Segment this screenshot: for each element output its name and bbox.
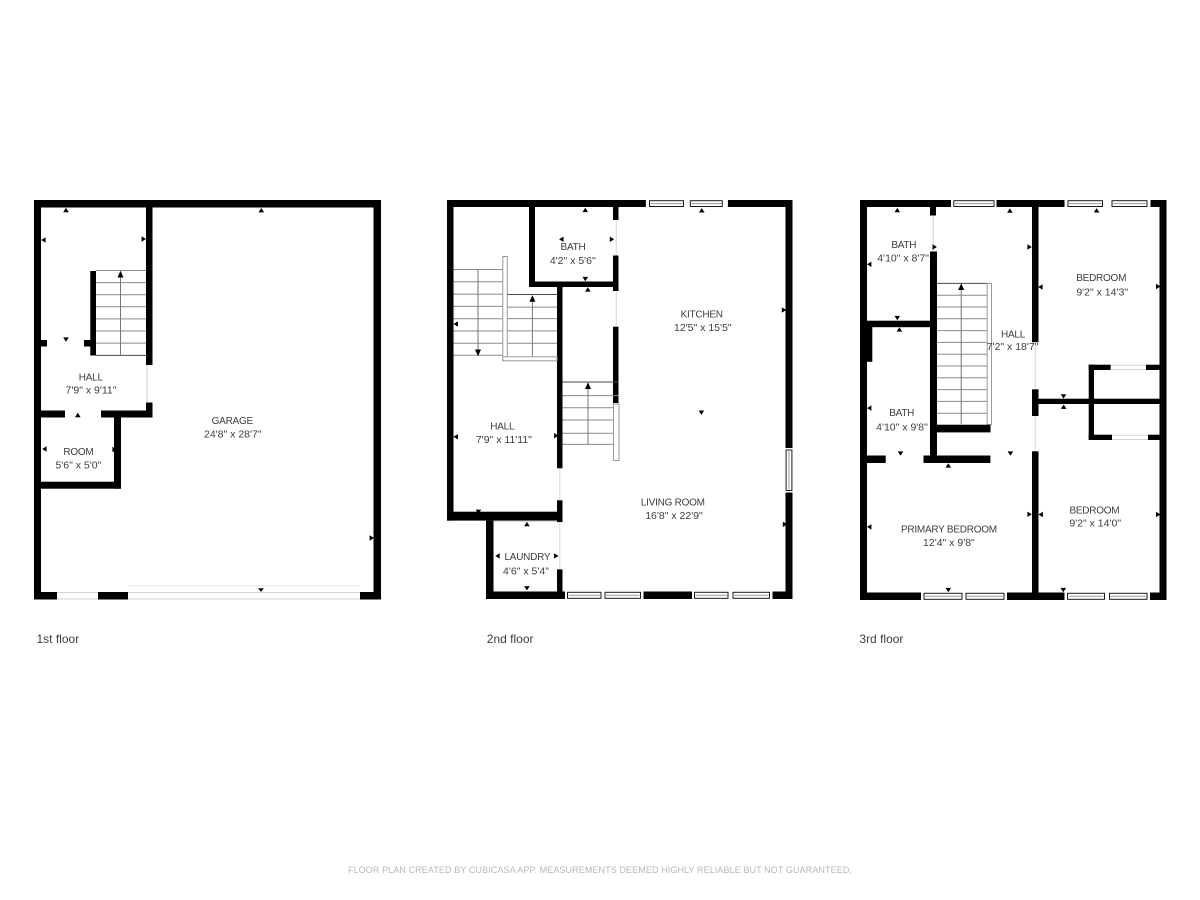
- svg-text:16'8" x 22'9": 16'8" x 22'9": [645, 510, 703, 522]
- svg-text:BEDROOM: BEDROOM: [1069, 506, 1119, 517]
- svg-text:KITCHEN: KITCHEN: [681, 309, 723, 320]
- svg-text:BATH: BATH: [561, 242, 586, 253]
- svg-text:4'2" x 5'6": 4'2" x 5'6": [550, 255, 596, 267]
- svg-text:7'9" x 11'11": 7'9" x 11'11": [476, 434, 532, 446]
- svg-text:7'9" x 9'11": 7'9" x 9'11": [66, 384, 117, 396]
- svg-text:LAUNDRY: LAUNDRY: [504, 552, 550, 563]
- svg-text:BATH: BATH: [889, 408, 914, 419]
- svg-text:ROOM: ROOM: [63, 447, 93, 458]
- svg-text:4'6" x 5'4": 4'6" x 5'4": [503, 566, 549, 578]
- svg-text:4'10" x 9'8": 4'10" x 9'8": [876, 421, 928, 433]
- svg-text:HALL: HALL: [490, 422, 515, 433]
- svg-text:3rd floor: 3rd floor: [859, 632, 903, 646]
- svg-text:BEDROOM: BEDROOM: [1076, 273, 1126, 284]
- svg-text:BATH: BATH: [891, 240, 916, 251]
- svg-text:4'10" x 8'7": 4'10" x 8'7": [877, 253, 929, 265]
- svg-text:9'2" x 14'3": 9'2" x 14'3": [1076, 286, 1128, 298]
- svg-text:PRIMARY BEDROOM: PRIMARY BEDROOM: [901, 525, 997, 536]
- svg-text:12'5" x 15'5": 12'5" x 15'5": [674, 322, 732, 334]
- svg-text:FLOOR PLAN CREATED BY CUBICASA: FLOOR PLAN CREATED BY CUBICASA APP. MEAS…: [348, 865, 852, 875]
- svg-text:2nd floor: 2nd floor: [487, 632, 534, 646]
- svg-text:LIVING ROOM: LIVING ROOM: [641, 498, 705, 509]
- svg-text:1st floor: 1st floor: [37, 632, 80, 646]
- svg-text:HALL: HALL: [79, 373, 104, 384]
- svg-text:5'6" x 5'0": 5'6" x 5'0": [55, 459, 101, 471]
- svg-text:HALL: HALL: [1001, 330, 1026, 341]
- svg-text:24'8" x 28'7": 24'8" x 28'7": [204, 428, 262, 440]
- svg-text:7'2" x 18'7": 7'2" x 18'7": [987, 341, 1039, 353]
- svg-text:12'4" x 9'8": 12'4" x 9'8": [923, 537, 975, 549]
- svg-text:GARAGE: GARAGE: [212, 416, 254, 427]
- svg-text:9'2" x 14'0": 9'2" x 14'0": [1069, 518, 1121, 530]
